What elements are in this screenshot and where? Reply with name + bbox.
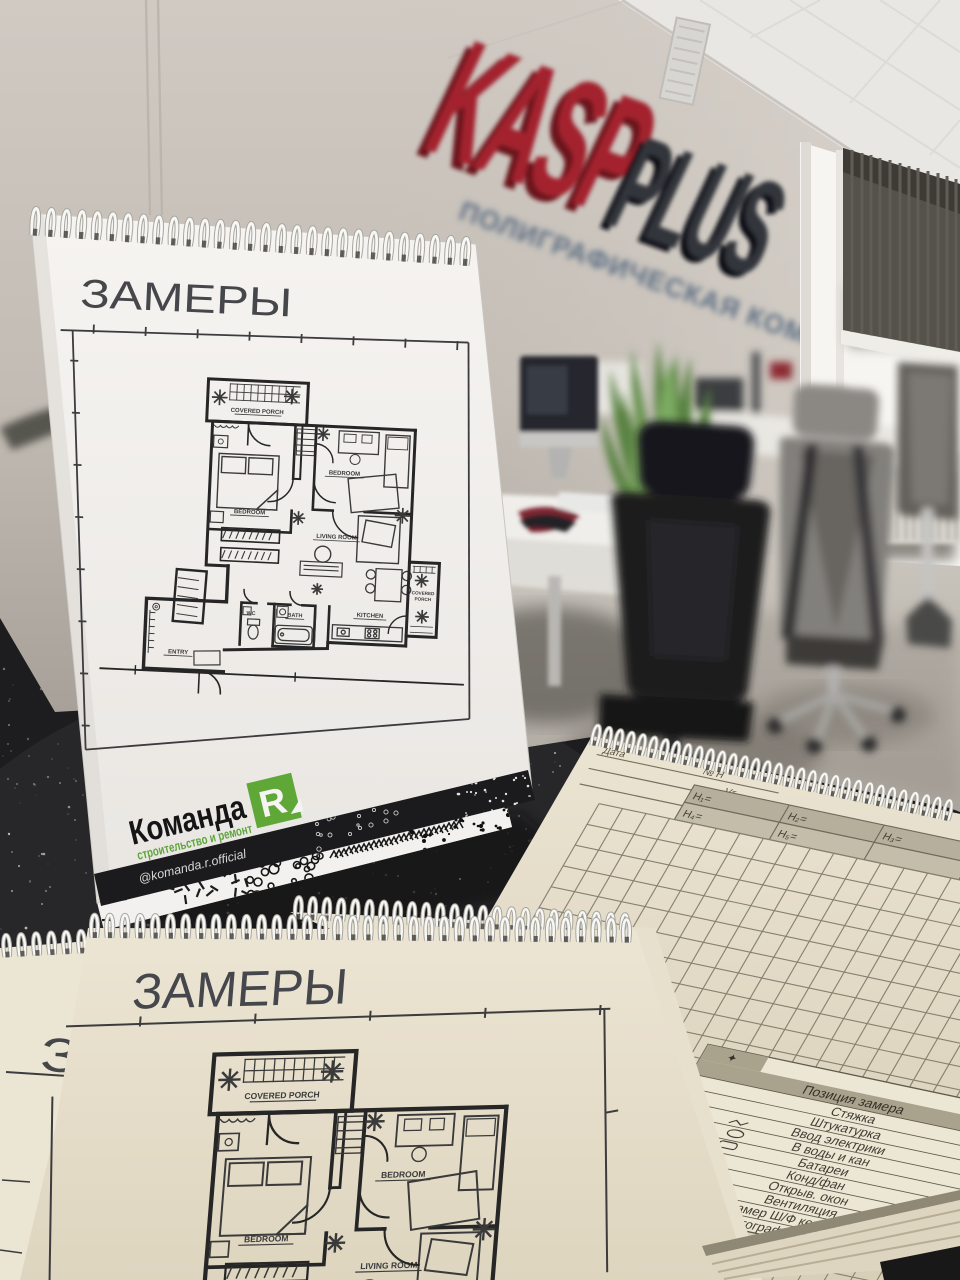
svg-text:COVERED: COVERED: [412, 590, 436, 596]
svg-text:ЗАМЕРЫ: ЗАМЕРЫ: [130, 958, 349, 1019]
svg-text:BEDROOM: BEDROOM: [381, 1169, 426, 1180]
svg-text:BATH: BATH: [287, 613, 302, 620]
svg-text:COVERED PORCH: COVERED PORCH: [244, 1089, 320, 1101]
svg-text:LIVING ROOM: LIVING ROOM: [360, 1260, 418, 1271]
svg-text:PORCH: PORCH: [414, 596, 431, 602]
